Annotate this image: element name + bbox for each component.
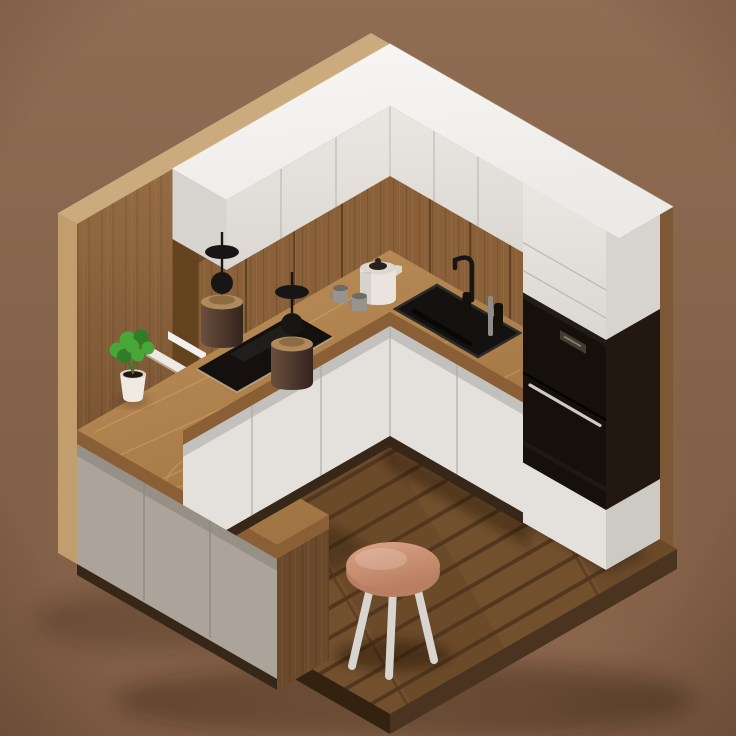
vignette-overlay (0, 0, 736, 736)
kitchen-scene-svg: Isometric 3D miniature kitchen render Lo… (0, 0, 736, 736)
kitchen-isometric-render: Isometric 3D miniature kitchen render Lo… (0, 0, 736, 736)
